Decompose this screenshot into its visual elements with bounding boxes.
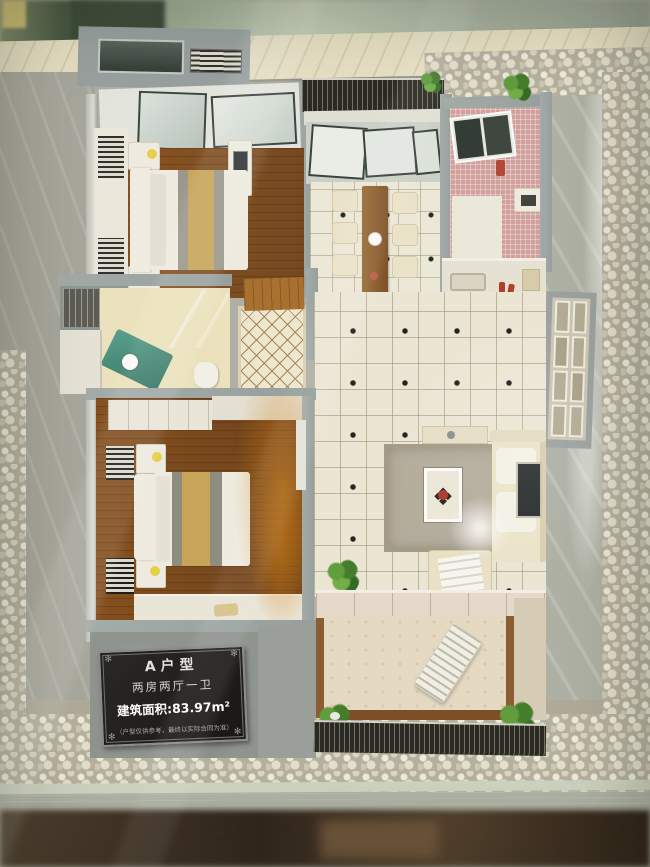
floor-blur-highlight — [320, 820, 440, 860]
terrace-floor — [324, 616, 506, 716]
dining-window-pane — [308, 124, 367, 180]
window-pane — [483, 115, 512, 156]
appliance-screen — [521, 195, 536, 206]
terrace-white-pebble — [330, 712, 340, 720]
wardrobe-panel — [98, 136, 124, 178]
glass-glare-soft — [400, 300, 650, 600]
bedroom1-wardrobe — [94, 128, 128, 298]
bed-gray-band — [172, 472, 182, 566]
wall-kitchen-east — [540, 92, 552, 272]
window-pane — [454, 118, 484, 159]
bath-cabinet — [60, 330, 102, 394]
window-opening — [98, 39, 185, 75]
bed-headboard — [130, 168, 150, 272]
bed-gray-band — [210, 472, 222, 566]
kitchen-floor-patch — [452, 196, 502, 258]
counter-box — [522, 269, 540, 291]
kitchen-appliance — [514, 188, 542, 212]
terrace-railing — [314, 720, 547, 756]
dining-chair — [392, 224, 418, 246]
background-sticker — [2, 0, 26, 28]
lamp-icon — [147, 149, 157, 159]
bed-runner — [182, 472, 210, 566]
dining-chair — [392, 256, 418, 278]
counter-sink — [450, 273, 486, 291]
bed-pillows — [150, 174, 166, 266]
kitchen-window — [449, 110, 516, 163]
bedroom1-nightstand — [128, 142, 160, 170]
bed-pillows — [156, 476, 170, 562]
terrace-post — [316, 618, 324, 718]
architectural-model-photo: ❖ ✻ ✻ ✻ ✻ — [0, 0, 650, 867]
hallway-door — [243, 277, 304, 311]
toilet-icon — [194, 362, 218, 388]
plant-icon — [502, 72, 532, 104]
lamp-icon — [150, 566, 160, 576]
wall-top-exterior — [77, 26, 250, 90]
gray-strip-mid-bottom — [258, 626, 316, 758]
kitchen-red-item — [496, 160, 505, 176]
